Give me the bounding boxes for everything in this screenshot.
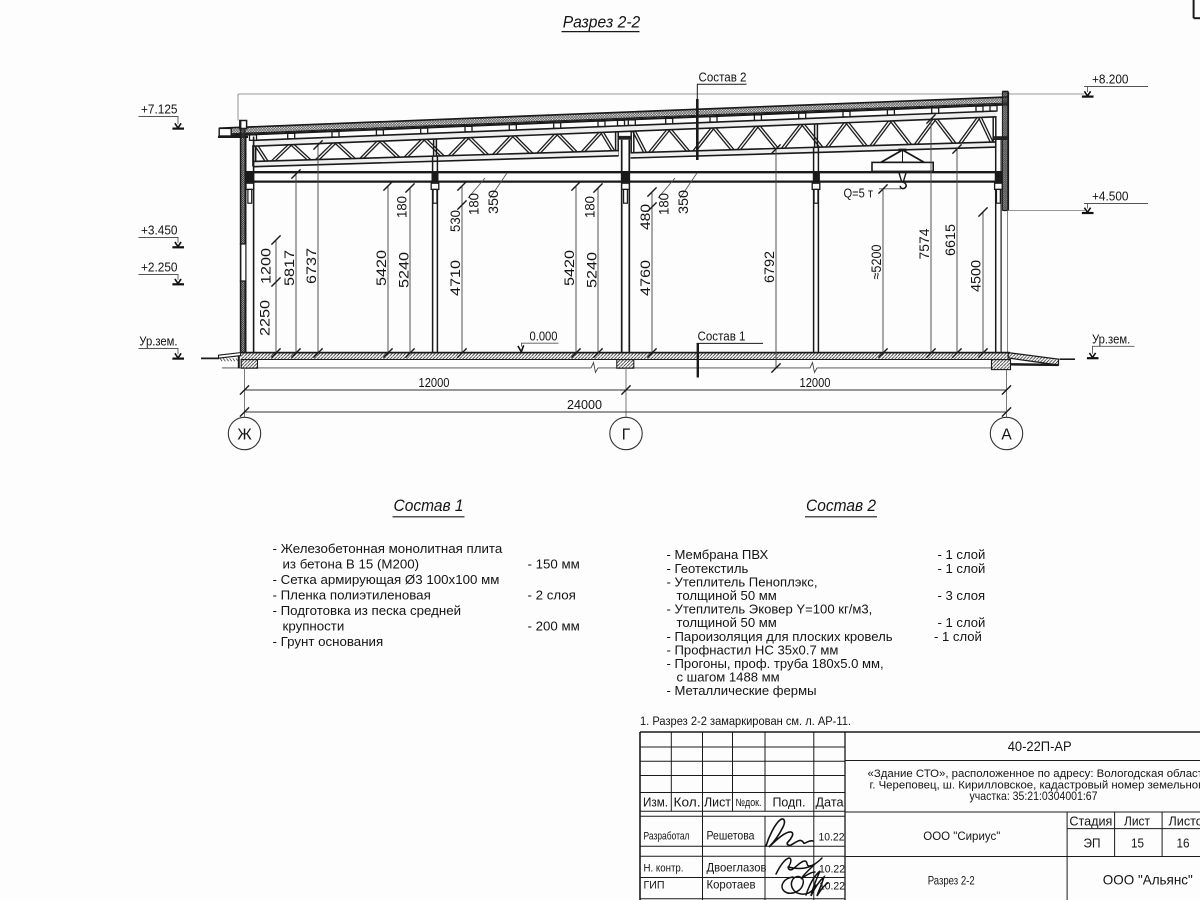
svg-text:Состав 2: Состав 2 — [699, 70, 747, 85]
svg-text:5420: 5420 — [562, 250, 578, 286]
svg-text:№док.: №док. — [736, 797, 762, 809]
svg-text:- Пленка полиэтиленовая: - Пленка полиэтиленовая — [273, 587, 431, 602]
svg-text:- 1 слой: - 1 слой — [934, 629, 982, 644]
svg-text:Подп.: Подп. — [773, 795, 806, 810]
svg-text:крупности: крупности — [283, 618, 345, 633]
svg-text:Состав 1: Состав 1 — [394, 497, 464, 515]
svg-text:5817: 5817 — [282, 250, 298, 286]
svg-text:5240: 5240 — [585, 252, 601, 288]
svg-text:350: 350 — [676, 190, 692, 214]
svg-text:Н. контр.: Н. контр. — [644, 863, 684, 875]
svg-text:Разрез 2-2: Разрез 2-2 — [563, 13, 641, 32]
svg-text:10.22: 10.22 — [819, 864, 845, 876]
svg-text:ЭП: ЭП — [1084, 836, 1101, 851]
svg-text:- Железобетонная монолитная п: - Железобетонная монолитная плита — [273, 541, 503, 556]
svg-text:- 3 слоя: - 3 слоя — [938, 588, 986, 603]
svg-text:- Сетка армирующая Ø3 100х100: - Сетка армирующая Ø3 100х100 мм — [273, 572, 500, 587]
svg-text:1200: 1200 — [259, 248, 275, 284]
svg-text:Дата: Дата — [816, 795, 845, 810]
svg-text:+7.125: +7.125 — [141, 103, 178, 117]
svg-text:+8.200: +8.200 — [1092, 73, 1129, 87]
svg-text:5240: 5240 — [397, 252, 413, 288]
svg-text:4760: 4760 — [638, 260, 654, 296]
svg-text:- 2 слоя: - 2 слоя — [528, 587, 576, 602]
svg-text:7574: 7574 — [917, 228, 933, 259]
svg-text:15: 15 — [1131, 836, 1144, 851]
svg-text:480: 480 — [638, 204, 654, 230]
svg-text:«Здание СТО», расположенное по: «Здание СТО», расположенное по адресу: В… — [868, 768, 1200, 780]
svg-text:2250: 2250 — [258, 300, 274, 336]
svg-text:Кол.: Кол. — [674, 795, 701, 810]
svg-text:4710: 4710 — [448, 260, 464, 296]
svg-text:+3.450: +3.450 — [141, 224, 178, 238]
svg-text:12000: 12000 — [419, 376, 450, 390]
svg-text:6737: 6737 — [304, 248, 320, 284]
svg-text:ООО "Альянс": ООО "Альянс" — [1103, 873, 1193, 888]
svg-text:Ур.зем.: Ур.зем. — [139, 335, 177, 349]
svg-text:- 150 мм: - 150 мм — [528, 556, 580, 571]
svg-text:Решетова: Решетова — [707, 830, 755, 843]
svg-text:40-22П-АР: 40-22П-АР — [1008, 738, 1072, 754]
svg-text:4500: 4500 — [969, 260, 985, 292]
svg-text:530: 530 — [448, 210, 464, 232]
svg-text:+4.500: +4.500 — [1092, 190, 1129, 204]
svg-text:16: 16 — [1177, 836, 1190, 851]
svg-text:≈5200: ≈5200 — [869, 244, 885, 279]
svg-text:А: А — [1001, 427, 1012, 444]
svg-text:180: 180 — [583, 196, 599, 218]
svg-text:1. Разрез 2-2 замаркирован см.: 1. Разрез 2-2 замаркирован см. л. АР-11. — [640, 714, 851, 728]
svg-text:Коротаев: Коротаев — [707, 879, 756, 892]
svg-text:ООО "Сириус": ООО "Сириус" — [923, 829, 1000, 843]
svg-text:5420: 5420 — [374, 250, 390, 286]
svg-text:- 1 слой: - 1 слой — [938, 561, 986, 576]
svg-text:Разрез 2-2: Разрез 2-2 — [928, 874, 975, 888]
svg-text:6615: 6615 — [943, 224, 959, 256]
svg-text:- Металлические фермы: - Металлические фермы — [667, 683, 817, 698]
svg-text:- Подготовка из песка средней: - Подготовка из песка средней — [273, 603, 462, 618]
svg-text:Ур.зем.: Ур.зем. — [1092, 332, 1130, 346]
svg-text:Изм.: Изм. — [643, 795, 668, 810]
svg-text:0.000: 0.000 — [530, 330, 558, 344]
svg-text:24000: 24000 — [567, 398, 602, 412]
svg-text:Лист: Лист — [704, 795, 731, 810]
svg-text:Стадия: Стадия — [1069, 814, 1112, 829]
svg-text:Лист: Лист — [1124, 814, 1150, 829]
svg-text:6792: 6792 — [762, 251, 778, 283]
svg-text:10.22: 10.22 — [819, 832, 845, 844]
svg-text:Ж: Ж — [237, 427, 252, 444]
svg-text:Листов: Листов — [1169, 814, 1200, 829]
svg-text:Q=5 т: Q=5 т — [844, 187, 874, 201]
svg-text:180: 180 — [395, 196, 411, 218]
svg-text:Г: Г — [622, 427, 631, 444]
svg-text:Состав 1: Состав 1 — [698, 329, 746, 344]
svg-text:12000: 12000 — [800, 376, 831, 390]
svg-text:участка: 35:21:0304001:67: участка: 35:21:0304001:67 — [970, 789, 1098, 803]
svg-text:180: 180 — [467, 193, 483, 215]
svg-text:180: 180 — [657, 193, 673, 215]
svg-text:Состав 2: Состав 2 — [806, 497, 876, 515]
svg-text:из бетона В 15 (М200): из бетона В 15 (М200) — [283, 556, 420, 571]
svg-text:Разработал: Разработал — [644, 831, 690, 843]
svg-text:+2.250: +2.250 — [141, 261, 178, 275]
svg-text:- 200 мм: - 200 мм — [528, 618, 580, 633]
svg-text:Двоеглазов: Двоеглазов — [707, 862, 767, 875]
svg-text:ГИП: ГИП — [644, 880, 665, 892]
svg-text:350: 350 — [486, 190, 502, 214]
svg-text:- Грунт основания: - Грунт основания — [273, 634, 384, 649]
